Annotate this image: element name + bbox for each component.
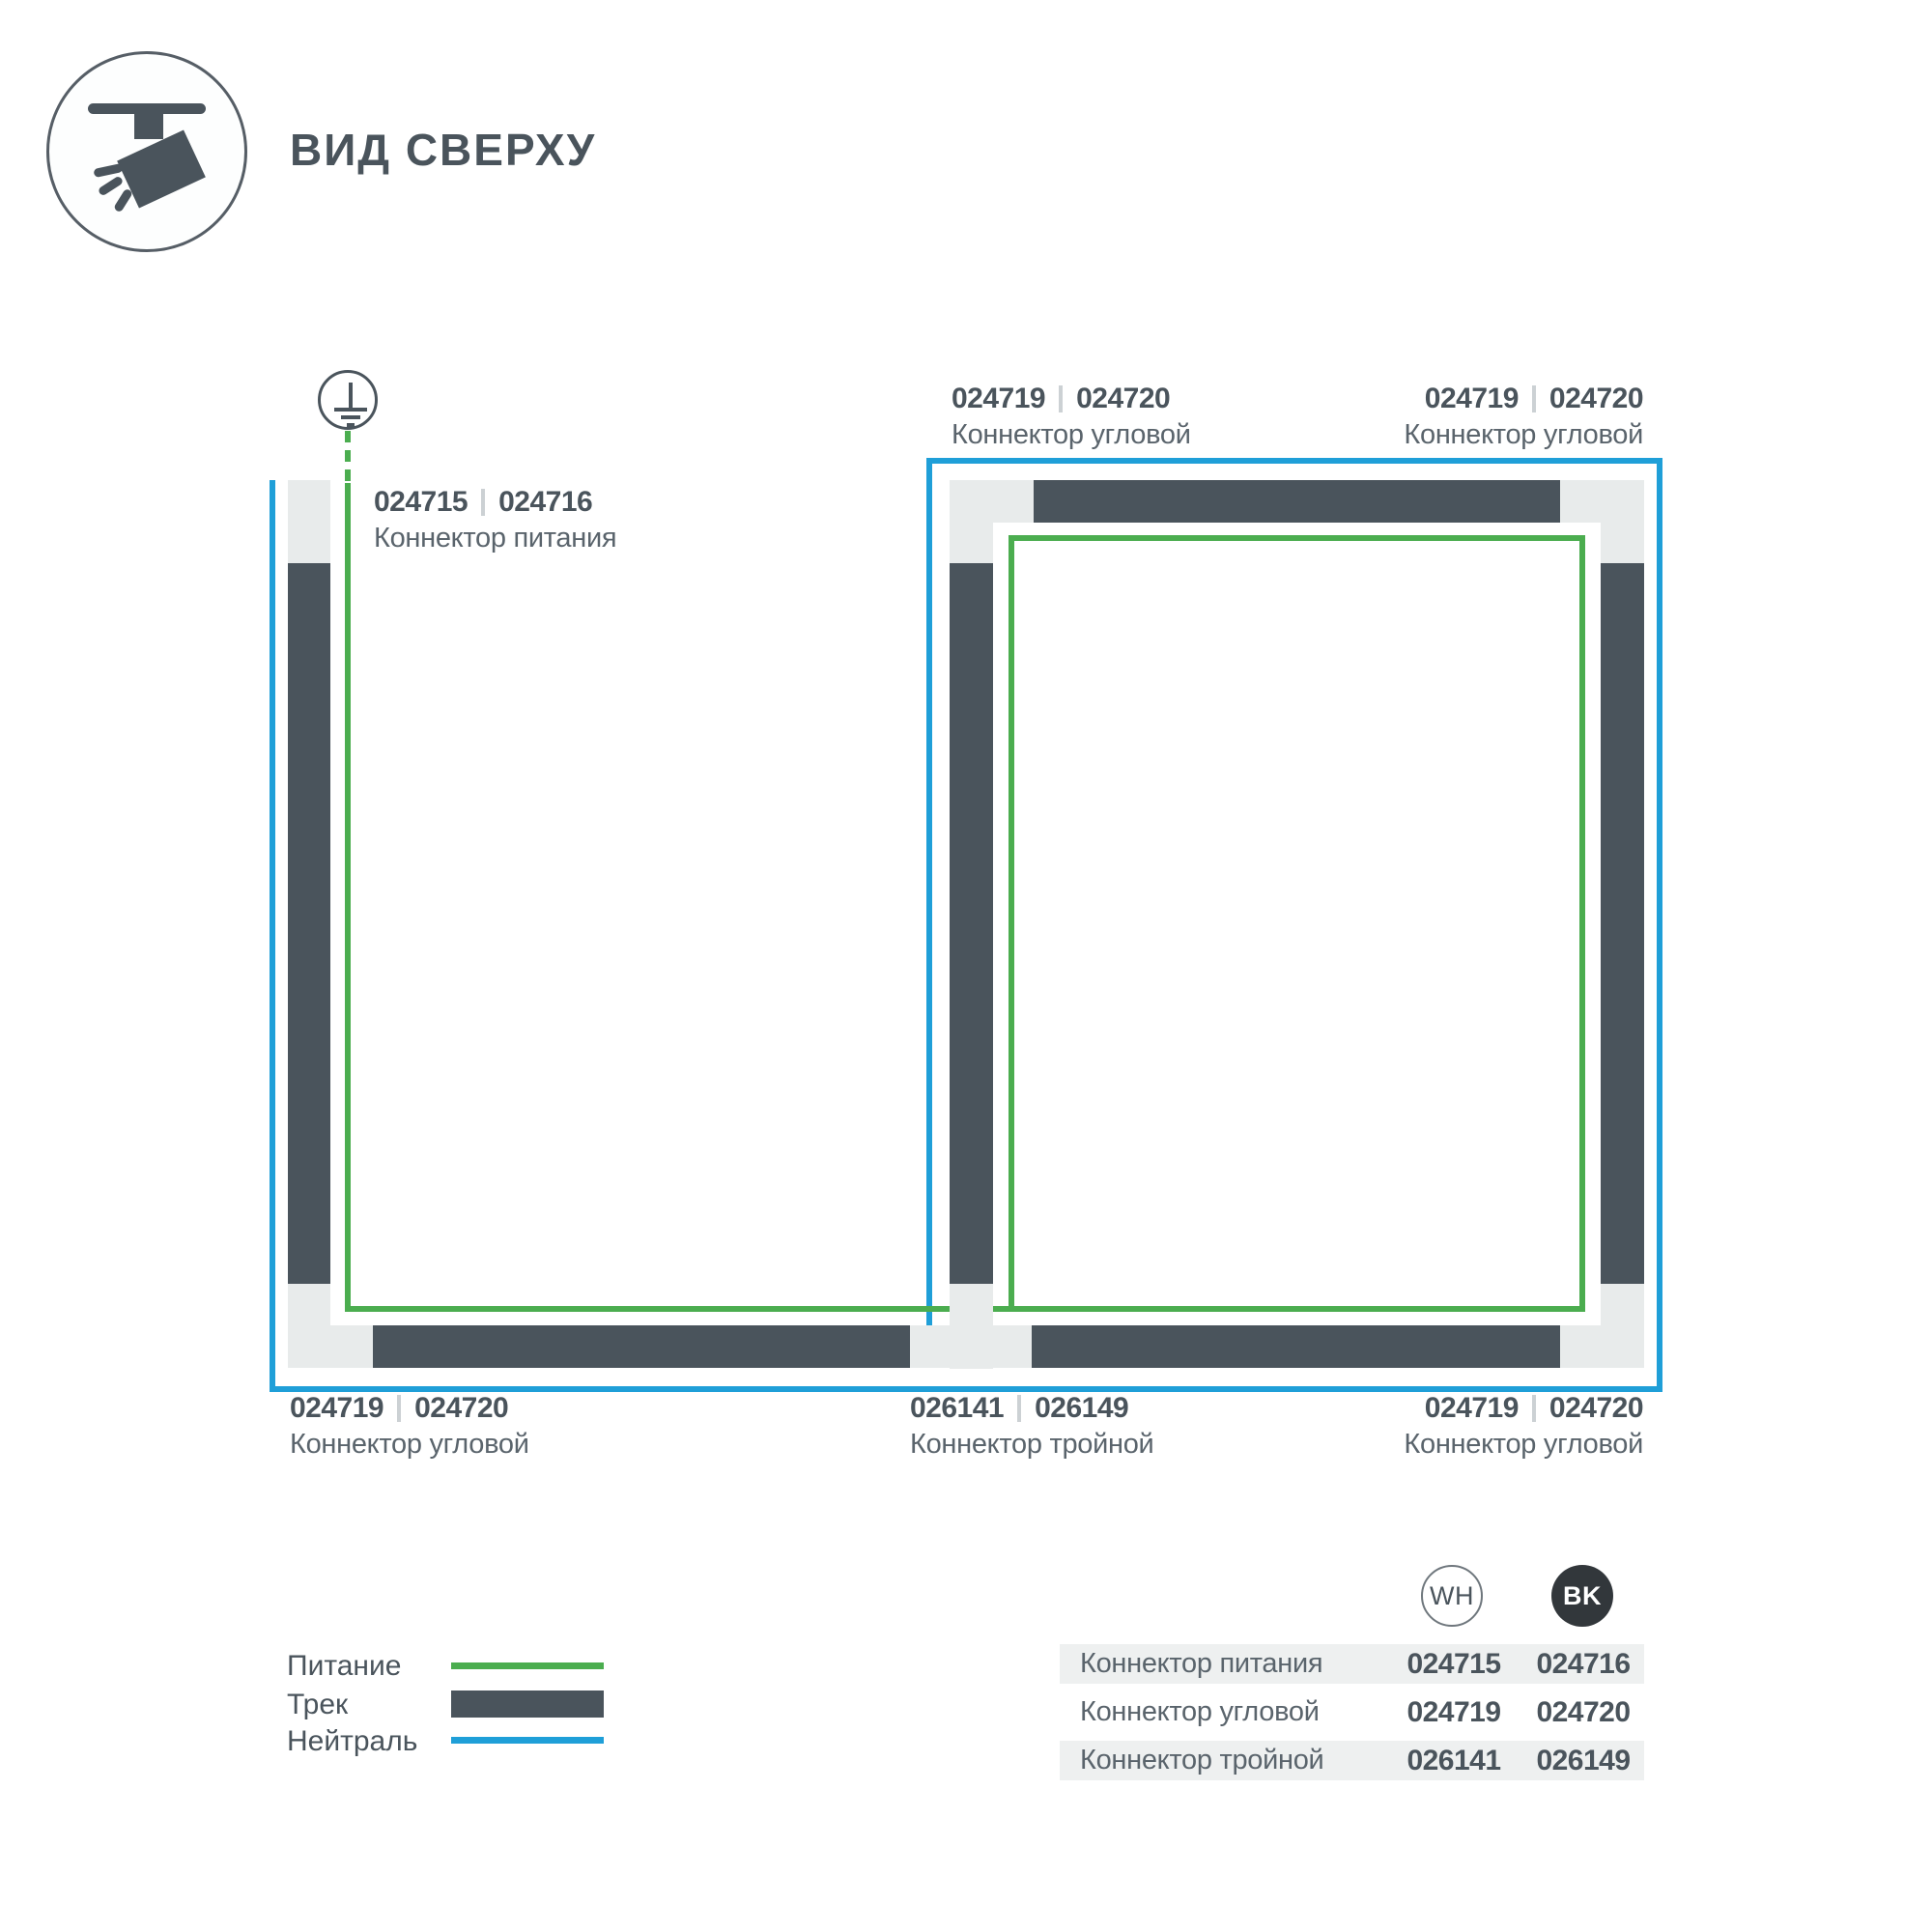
connector-name: Коннектор угловой [952, 420, 1191, 449]
part-code-bk: 024720 [1549, 384, 1643, 413]
code-separator [1059, 385, 1063, 412]
code-separator [397, 1395, 401, 1422]
code-separator [1017, 1395, 1021, 1422]
neutral-line-inner [926, 458, 932, 1325]
neutral-line-right [1657, 458, 1662, 1392]
cell-bk-code: 024716 [1506, 1644, 1661, 1684]
cell-bk-code: 024720 [1506, 1692, 1661, 1732]
connector-label-top-left: 024719 024720 Коннектор угловой [952, 384, 1191, 449]
part-code-wh: 026141 [910, 1394, 1004, 1423]
black-color-badge: BK [1551, 1565, 1613, 1627]
light-ray-icon [113, 188, 133, 213]
table-row: Коннектор тройной 026141 026149 [1060, 1741, 1644, 1780]
track-segment-right-top [1034, 480, 1560, 523]
row-name: Коннектор тройной [1080, 1741, 1323, 1780]
legend-label-power: Питание [287, 1651, 401, 1682]
connector-power [288, 480, 330, 563]
connector-name: Коннектор угловой [1404, 420, 1643, 449]
table-row: Коннектор угловой 024719 024720 [1060, 1692, 1644, 1732]
part-code-wh: 024715 [374, 488, 468, 517]
track-swatch [451, 1690, 604, 1718]
connector-name: Коннектор питания [374, 524, 616, 553]
earth-bar [334, 408, 367, 412]
connector-label-bottom-right: 024719 024720 Коннектор угловой [1404, 1394, 1643, 1459]
part-code-bk: 024720 [1549, 1394, 1643, 1423]
earth-bar [347, 423, 355, 427]
white-color-badge: WH [1421, 1565, 1483, 1627]
fixture-stem [134, 110, 163, 139]
track-segment-left-vertical [288, 563, 330, 1284]
legend-label-neutral: Нейтраль [287, 1726, 417, 1757]
track-spotlight-icon [46, 51, 247, 252]
part-code-wh: 024719 [1425, 384, 1519, 413]
part-code-bk: 024720 [1076, 384, 1170, 413]
page-title: ВИД СВЕРХУ [290, 126, 596, 174]
connector-label-bottom-left: 024719 024720 Коннектор угловой [290, 1394, 529, 1459]
legend-label-track: Трек [287, 1690, 348, 1720]
track-segment-right-bottom [1032, 1325, 1560, 1368]
connector-triple [910, 1325, 1032, 1368]
power-line-swatch [451, 1662, 604, 1669]
connector-corner-top-right [1560, 480, 1644, 523]
track-segment-right-right [1601, 563, 1644, 1284]
track-segment-right-left [950, 563, 993, 1284]
part-code-bk: 024720 [414, 1394, 508, 1423]
part-code-wh: 024719 [1425, 1394, 1519, 1423]
power-line-loop [1009, 535, 1585, 1312]
connector-label-top-right: 024719 024720 Коннектор угловой [1404, 384, 1643, 449]
neutral-line-left [270, 480, 275, 1392]
part-code-bk: 024716 [498, 488, 592, 517]
light-ray-icon [98, 175, 125, 196]
connector-name: Коннектор угловой [1404, 1430, 1643, 1459]
power-line-vertical [345, 483, 351, 1312]
connector-name: Коннектор тройной [910, 1430, 1153, 1459]
code-separator [1532, 385, 1536, 412]
power-line-horizontal [345, 1306, 1014, 1312]
connector-corner-bottom-right [1560, 1325, 1644, 1368]
top-view-diagram-page: ВИД СВЕРХУ 024719 024720 Коннектор у [0, 0, 1932, 1932]
light-ray-icon [93, 163, 123, 178]
earth-bar [341, 415, 360, 419]
protective-earth-icon [318, 370, 378, 430]
track-segment-left-bottom [371, 1325, 910, 1368]
power-line-dashed [345, 431, 351, 483]
table-row: Коннектор питания 024715 024716 [1060, 1644, 1644, 1684]
part-code-bk: 026149 [1035, 1394, 1128, 1423]
neutral-line-top [926, 458, 1662, 464]
code-separator [1532, 1395, 1536, 1422]
earth-stem [349, 383, 353, 408]
connector-label-bottom-middle: 026141 026149 Коннектор тройной [910, 1394, 1153, 1459]
neutral-line-swatch [451, 1737, 604, 1744]
connector-corner-bottom-left [288, 1325, 373, 1368]
part-code-wh: 024719 [952, 384, 1045, 413]
connector-corner-top-left [950, 480, 1034, 523]
row-name: Коннектор угловой [1080, 1692, 1320, 1732]
code-separator [481, 489, 485, 516]
part-code-wh: 024719 [290, 1394, 384, 1423]
connector-label-power: 024715 024716 Коннектор питания [374, 488, 616, 553]
row-name: Коннектор питания [1080, 1644, 1322, 1684]
cell-bk-code: 026149 [1506, 1741, 1661, 1780]
connector-name: Коннектор угловой [290, 1430, 529, 1459]
